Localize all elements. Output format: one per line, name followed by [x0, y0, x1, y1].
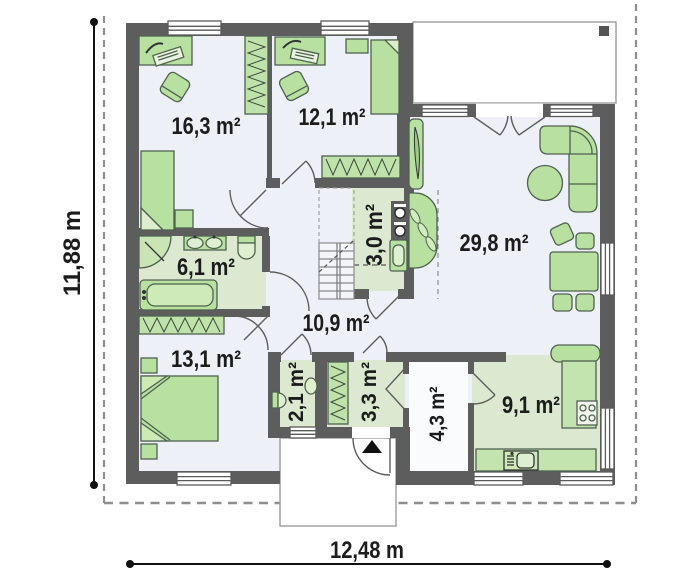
svg-text:12,48 m: 12,48 m — [330, 537, 404, 564]
svg-text:16,3 m²: 16,3 m² — [172, 113, 241, 140]
svg-text:9,1 m²: 9,1 m² — [502, 392, 560, 419]
svg-text:3,0 m²: 3,0 m² — [361, 204, 387, 266]
svg-text:2,1 m²: 2,1 m² — [285, 362, 308, 422]
svg-text:11,88 m: 11,88 m — [59, 210, 86, 296]
svg-text:6,1 m²: 6,1 m² — [177, 254, 235, 281]
svg-text:12,1 m²: 12,1 m² — [299, 104, 366, 131]
svg-text:3,3 m²: 3,3 m² — [358, 362, 381, 422]
svg-text:13,1 m²: 13,1 m² — [171, 346, 241, 373]
svg-text:4,3 m²: 4,3 m² — [426, 387, 449, 442]
svg-text:10,9 m²: 10,9 m² — [303, 310, 370, 337]
svg-text:29,8 m²: 29,8 m² — [460, 230, 529, 257]
